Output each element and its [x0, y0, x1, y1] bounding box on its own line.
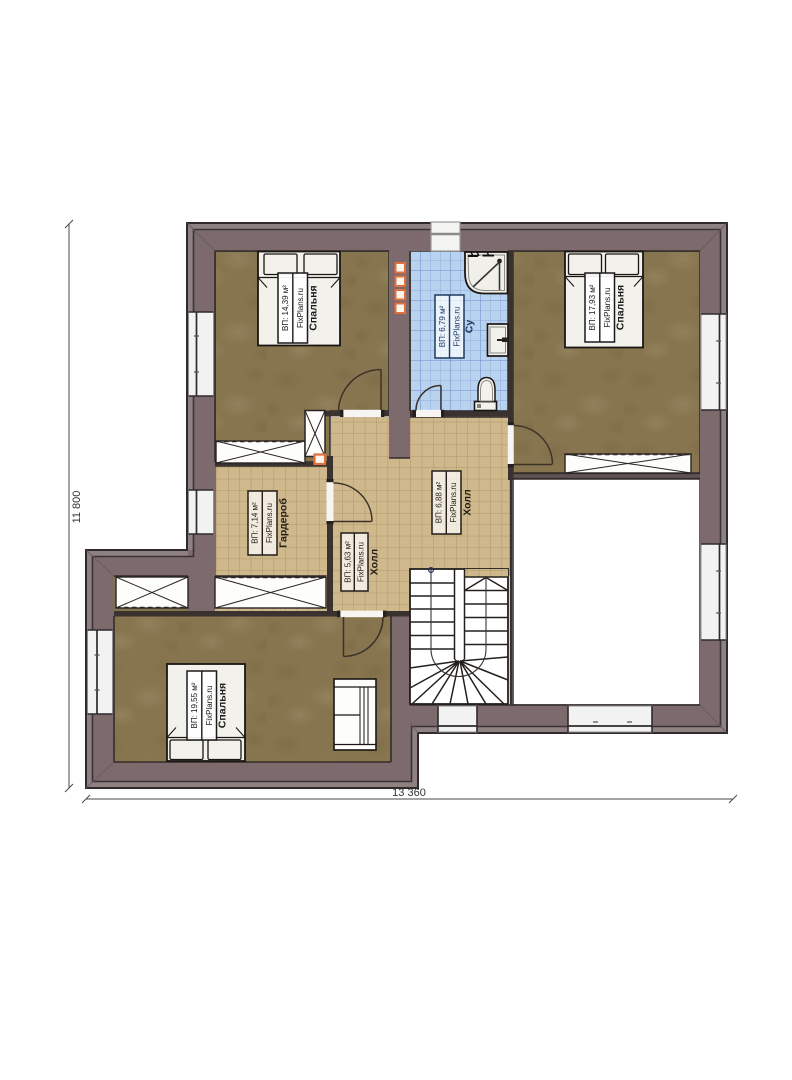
- svg-text:Спальня: Спальня: [615, 285, 627, 330]
- svg-text:13 360: 13 360: [392, 787, 426, 799]
- svg-text:ВП: 6,79 м²: ВП: 6,79 м²: [438, 305, 447, 347]
- svg-text:ВП: 19,55 м²: ВП: 19,55 м²: [190, 682, 199, 728]
- svg-text:Су: Су: [464, 320, 476, 334]
- svg-text:FixPlans.ru: FixPlans.ru: [205, 685, 214, 725]
- svg-text:ВП: 14,39 м²: ВП: 14,39 м²: [281, 285, 290, 331]
- svg-text:Гардероб: Гардероб: [278, 498, 290, 548]
- svg-text:FixPlans.ru: FixPlans.ru: [603, 287, 612, 327]
- svg-text:Спальня: Спальня: [308, 285, 320, 330]
- svg-text:Холл: Холл: [462, 489, 474, 515]
- svg-text:FixPlans.ru: FixPlans.ru: [265, 503, 274, 543]
- svg-text:ВП: 17,93 м²: ВП: 17,93 м²: [588, 284, 597, 330]
- svg-text:FixPlans.ru: FixPlans.ru: [452, 306, 461, 346]
- svg-text:11 800: 11 800: [71, 491, 83, 524]
- svg-text:FixPlans.ru: FixPlans.ru: [357, 542, 366, 582]
- svg-text:FixPlans.ru: FixPlans.ru: [449, 482, 458, 522]
- svg-text:ВП: 7,14 м²: ВП: 7,14 м²: [251, 502, 260, 544]
- svg-text:Холл: Холл: [369, 549, 381, 575]
- svg-text:Спальня: Спальня: [217, 683, 229, 728]
- svg-text:ВП: 5,63 м²: ВП: 5,63 м²: [343, 541, 352, 583]
- svg-text:FixPlans.ru: FixPlans.ru: [296, 288, 305, 328]
- svg-text:ВП: 6,88 м²: ВП: 6,88 м²: [435, 481, 444, 523]
